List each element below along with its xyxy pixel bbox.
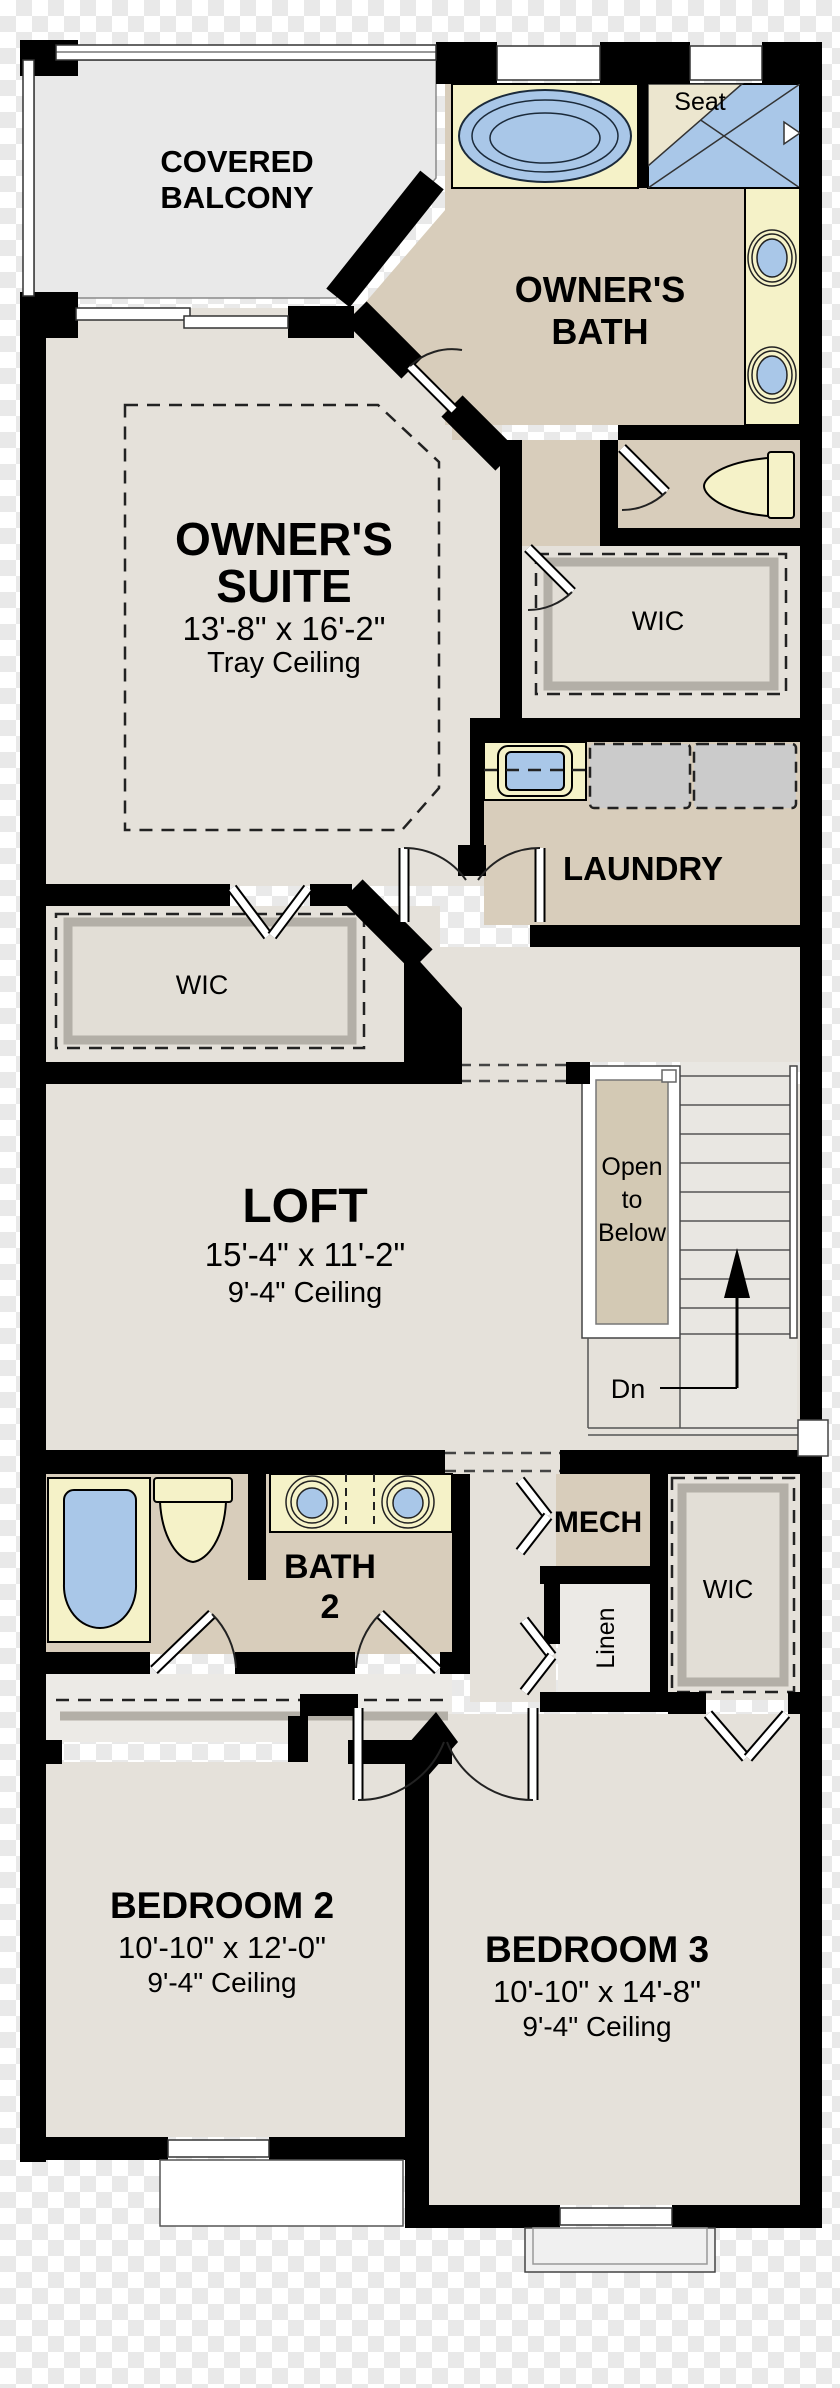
- owners-suite-label-2: SUITE: [216, 560, 351, 612]
- laundry-label: LAUNDRY: [563, 850, 723, 887]
- wic-owners-label: WIC: [176, 970, 228, 1000]
- owners-suite-ceiling: Tray Ceiling: [207, 647, 361, 679]
- bedroom3-window-bump: [525, 2228, 715, 2272]
- bath2-vanity: [270, 1474, 452, 1532]
- bath-window-1: [497, 46, 600, 80]
- bedroom3-dims: 10'-10" x 14'-8": [493, 1974, 701, 2009]
- garden-tub: [459, 90, 631, 182]
- bedroom2-ceiling: 9'-4" Ceiling: [147, 1967, 296, 1998]
- owners-bath-label-1: OWNER'S: [515, 269, 686, 310]
- bath2-tub: [64, 1490, 136, 1628]
- newel-post: [662, 1070, 676, 1082]
- bath2-label-2: 2: [321, 1588, 340, 1626]
- wic-hall-label: WIC: [632, 606, 684, 636]
- bedroom2-window: [168, 2140, 269, 2157]
- hall-floor: [404, 947, 800, 1062]
- linen-label: Linen: [592, 1607, 620, 1668]
- floor-plan-drawing: COVERED BALCONY OWNER'S BATH Seat OWNER'…: [0, 0, 840, 2388]
- cased-opening-top: [460, 1062, 566, 1084]
- bedroom2-dims: 10'-10" x 12'-0": [118, 1930, 326, 1965]
- bedroom3-ceiling: 9'-4" Ceiling: [522, 2011, 671, 2042]
- open-to-below-3: Below: [598, 1219, 667, 1247]
- bedroom2-label: BEDROOM 2: [110, 1885, 334, 1926]
- mech-label: MECH: [554, 1506, 642, 1539]
- bath2-label-1: BATH: [284, 1548, 376, 1586]
- owners-suite-label-1: OWNER'S: [175, 513, 393, 565]
- floor-plan-canvas: COVERED BALCONY OWNER'S BATH Seat OWNER'…: [0, 0, 840, 2388]
- washer: [590, 744, 690, 808]
- wic-bed3-window: [798, 1420, 828, 1456]
- double-vanity: [745, 188, 800, 425]
- stairs-dn-label: Dn: [611, 1374, 646, 1404]
- loft-label: LOFT: [242, 1180, 367, 1233]
- laundry-fixtures: [484, 742, 796, 808]
- covered-balcony-label-1: COVERED: [160, 144, 313, 179]
- loft-ceiling: 9'-4" Ceiling: [228, 1277, 382, 1309]
- wic-bed3-label: WIC: [703, 1574, 754, 1604]
- dryer: [694, 744, 796, 808]
- stair-rail: [790, 1066, 797, 1338]
- loft-dims: 15'-4" x 11'-2": [205, 1236, 406, 1273]
- shower-seat-label: Seat: [674, 88, 725, 116]
- owners-suite-dims: 13'-8" x 16'-2": [183, 610, 386, 647]
- bedroom2-porch-outline: [160, 2160, 403, 2226]
- bath-window-2: [690, 46, 762, 80]
- covered-balcony-label-2: BALCONY: [160, 180, 314, 215]
- bedroom3-label: BEDROOM 3: [485, 1929, 709, 1970]
- open-to-below-1: Open: [601, 1153, 662, 1181]
- owners-bath-label-2: BATH: [551, 311, 648, 352]
- bedroom3-window: [560, 2208, 672, 2225]
- open-to-below-2: to: [622, 1186, 643, 1214]
